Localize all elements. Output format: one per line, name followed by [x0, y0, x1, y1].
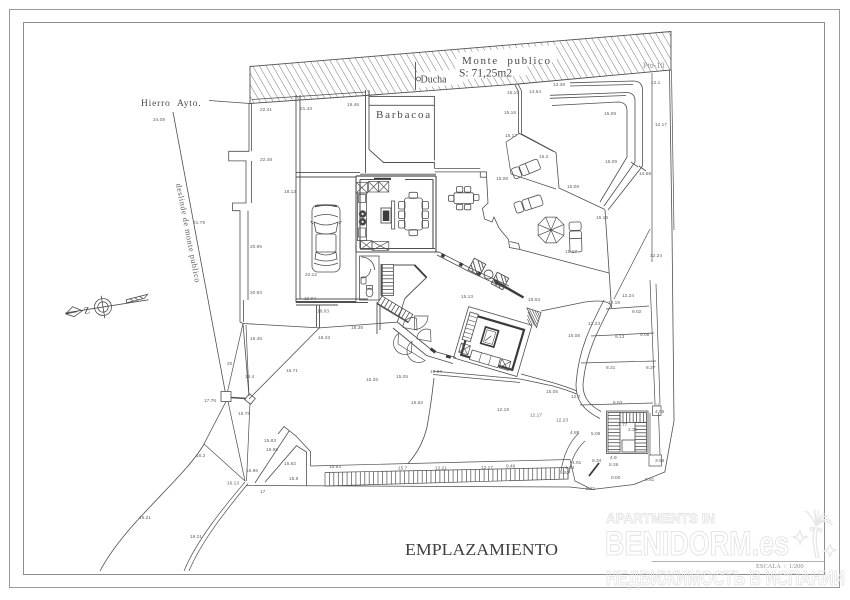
svg-text:13.38: 13.38 [553, 82, 565, 88]
svg-text:ESCALA : 1/200: ESCALA : 1/200 [756, 563, 804, 570]
svg-text:15.82: 15.82 [284, 461, 296, 467]
svg-text:16.88: 16.88 [266, 447, 278, 453]
svg-text:8.37: 8.37 [646, 365, 656, 371]
svg-text:15.75: 15.75 [238, 411, 250, 417]
svg-text:4.05: 4.05 [655, 409, 665, 415]
svg-text:15.09: 15.09 [604, 111, 616, 117]
svg-text:18.63: 18.63 [528, 297, 540, 303]
svg-text:15.17: 15.17 [565, 249, 577, 255]
svg-text:19.04: 19.04 [304, 296, 316, 302]
svg-text:5.26: 5.26 [609, 462, 619, 468]
svg-text:18.45: 18.45 [250, 336, 262, 342]
svg-text:S: 71,25m2: S: 71,25m2 [459, 68, 512, 80]
svg-text:12.23: 12.23 [556, 418, 568, 424]
svg-text:12.2: 12.2 [571, 394, 581, 400]
svg-text:12.24: 12.24 [622, 293, 634, 299]
svg-text:APARTMENTS IN: APARTMENTS IN [606, 510, 715, 526]
svg-text:12.23: 12.23 [588, 321, 600, 327]
svg-text:24.08: 24.08 [153, 117, 165, 123]
svg-text:12.1: 12.1 [651, 80, 661, 86]
svg-text:4.88: 4.88 [570, 430, 580, 436]
svg-text:12.17: 12.17 [655, 122, 667, 128]
svg-text:20.93: 20.93 [250, 290, 262, 296]
svg-text:1.77: 1.77 [618, 422, 628, 428]
svg-text:21.43: 21.43 [300, 106, 312, 112]
svg-text:15.2: 15.2 [539, 154, 549, 160]
svg-text:16.96: 16.96 [246, 468, 258, 474]
svg-text:5.52: 5.52 [560, 470, 570, 476]
svg-text:3.96: 3.96 [655, 458, 665, 464]
svg-text:12.19: 12.19 [497, 407, 509, 413]
svg-text:18.43: 18.43 [318, 335, 330, 341]
svg-text:17: 17 [260, 489, 266, 495]
svg-text:0.00: 0.00 [611, 475, 621, 481]
svg-text:21.79: 21.79 [193, 220, 205, 226]
svg-text:BENIDORM.es: BENIDORM.es [605, 525, 789, 563]
svg-text:17.76: 17.76 [204, 398, 216, 404]
svg-text:18.4: 18.4 [245, 374, 255, 380]
svg-text:22.41: 22.41 [260, 107, 272, 113]
svg-text:12.21: 12.21 [435, 466, 447, 472]
svg-text:Hierro Ayto.: Hierro Ayto. [141, 99, 201, 109]
svg-text:15.09: 15.09 [605, 159, 617, 165]
svg-text:15.15: 15.15 [507, 90, 519, 96]
svg-text:15.83: 15.83 [264, 438, 276, 444]
svg-text:0.81: 0.81 [645, 477, 655, 483]
svg-text:Monte publico: Monte publico [462, 55, 552, 67]
svg-text:16.21: 16.21 [139, 515, 151, 521]
svg-text:15.26: 15.26 [366, 377, 378, 383]
svg-text:18.63: 18.63 [317, 309, 329, 315]
svg-text:9.08: 9.08 [640, 332, 650, 338]
svg-text:15.05: 15.05 [546, 389, 558, 395]
svg-text:15.17: 15.17 [505, 133, 517, 139]
svg-text:18.12: 18.12 [284, 189, 296, 195]
svg-text:19.46: 19.46 [347, 102, 359, 108]
svg-text:8.31: 8.31 [606, 365, 616, 371]
svg-text:20.95: 20.95 [250, 244, 262, 250]
svg-text:22.12: 22.12 [305, 272, 317, 278]
svg-text:9.34: 9.34 [592, 458, 602, 464]
svg-text:9.02: 9.02 [632, 309, 642, 315]
svg-text:22.48: 22.48 [260, 157, 272, 163]
svg-text:15.83: 15.83 [329, 464, 341, 470]
svg-text:6.6: 6.6 [654, 402, 661, 408]
svg-text:5.31: 5.31 [586, 486, 596, 492]
svg-text:14.54: 14.54 [529, 89, 541, 95]
svg-text:12.17: 12.17 [530, 413, 542, 419]
svg-text:НЕДВИЖИМОСТЬ В ИСПАНИИ: НЕДВИЖИМОСТЬ В ИСПАНИИ [606, 568, 845, 590]
svg-text:14.58: 14.58 [639, 171, 651, 177]
svg-text:16.71: 16.71 [286, 368, 298, 374]
svg-text:4.9: 4.9 [610, 455, 617, 461]
svg-text:19.04: 19.04 [430, 369, 442, 375]
svg-text:9.13: 9.13 [615, 334, 625, 340]
svg-text:15.08: 15.08 [568, 333, 580, 339]
svg-text:Ducha: Ducha [421, 75, 448, 86]
svg-text:5.06: 5.06 [591, 431, 601, 437]
svg-text:15.16: 15.16 [596, 215, 608, 221]
svg-text:12.24: 12.24 [650, 253, 662, 259]
svg-text:12.19: 12.19 [608, 300, 620, 306]
svg-text:6.63: 6.63 [613, 400, 623, 406]
svg-text:15.62: 15.62 [411, 400, 423, 406]
svg-text:15.08: 15.08 [567, 184, 579, 190]
svg-text:15.05: 15.05 [396, 374, 408, 380]
svg-text:15.16: 15.16 [504, 110, 516, 116]
svg-text:9.46: 9.46 [506, 464, 516, 470]
svg-text:12.17: 12.17 [481, 465, 493, 471]
svg-text:15.08: 15.08 [496, 176, 508, 182]
svg-text:15.8: 15.8 [289, 476, 299, 482]
svg-text:15.13: 15.13 [461, 294, 473, 300]
svg-text:20: 20 [227, 361, 233, 367]
svg-text:15.7: 15.7 [398, 466, 408, 472]
svg-text:Barbacoa: Barbacoa [376, 109, 432, 121]
svg-text:2.36: 2.36 [628, 427, 638, 433]
svg-text:16.2: 16.2 [196, 453, 206, 459]
svg-text:Pto-10: Pto-10 [643, 61, 664, 70]
svg-text:EMPLAZAMIENTO: EMPLAZAMIENTO [405, 540, 558, 559]
svg-text:16.21: 16.21 [190, 534, 202, 540]
svg-text:18.38: 18.38 [351, 325, 363, 331]
svg-text:16.13: 16.13 [227, 481, 239, 487]
